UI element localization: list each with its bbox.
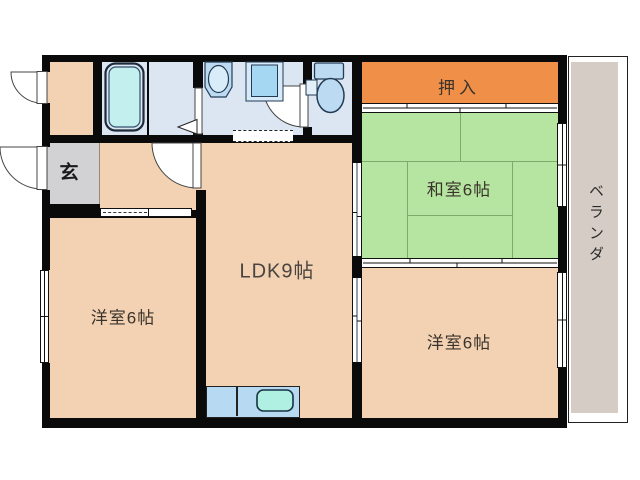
toilet-bowl	[317, 79, 344, 113]
fixtures-and-doors-layer	[0, 0, 640, 480]
floor-plan: ベランダ	[0, 0, 640, 480]
room-label-washitsu: 和室6帖	[427, 176, 491, 201]
door-leaf	[37, 147, 47, 190]
door-leaf	[37, 72, 47, 104]
room-label-youshitsu-right: 洋室6帖	[427, 329, 491, 354]
door-arc-hall-ldk	[152, 143, 197, 188]
room-label-ldk: LDK9帖	[239, 255, 314, 284]
washing-machine-pan-inner	[252, 65, 278, 97]
toilet-tank	[315, 63, 344, 79]
kitchen-sink	[257, 390, 293, 411]
bathtub-inner	[109, 67, 140, 127]
toilet-hand-basin	[306, 80, 317, 95]
room-label-oshiire: 押入	[438, 74, 480, 99]
wash-basin-bowl	[209, 66, 229, 93]
room-label-youshitsu-left: 洋室6帖	[91, 304, 155, 329]
door-leaf	[193, 143, 201, 188]
room-label-genkan: 玄	[59, 158, 78, 185]
bathroom-door-arrow	[178, 120, 197, 135]
door-arc-genkan	[0, 147, 42, 189]
